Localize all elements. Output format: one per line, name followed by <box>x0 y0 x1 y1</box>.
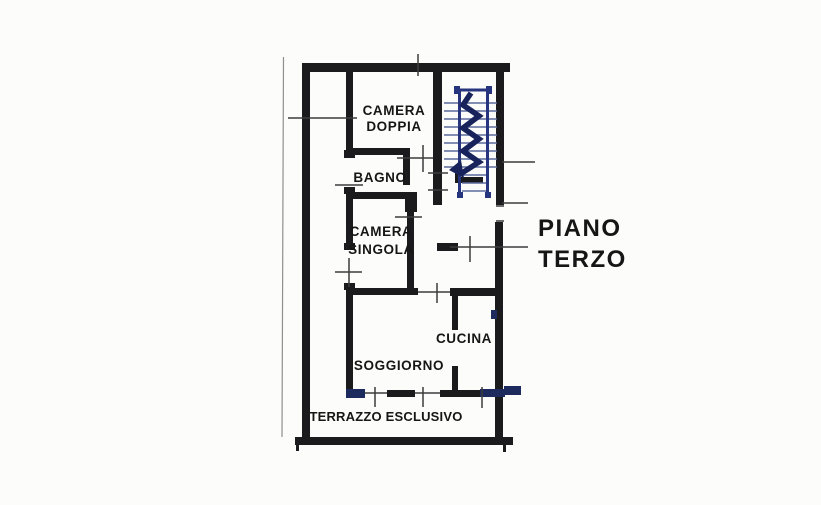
terrace-door-jamb-left <box>346 389 365 398</box>
wall-terrace-bottom <box>295 437 513 445</box>
wall-jamb <box>405 192 417 212</box>
floor-plan-page: CAMERA DOPPIA BAGNO CAMERA SINGOLA CUCIN… <box>0 0 821 505</box>
room-label-camera-singola-line1: CAMERA <box>350 224 413 239</box>
wall-outer-right-stairwell <box>496 63 504 205</box>
room-label-soggiorno: SOGGIORNO <box>354 358 444 373</box>
wall-outer-left <box>302 63 310 444</box>
wall-south-seg <box>387 390 415 397</box>
wall-interior-left-a <box>346 72 353 158</box>
terrace-door-stub <box>504 386 521 395</box>
wall-outer-top <box>302 63 510 72</box>
wall-outer-right-lower <box>495 222 503 437</box>
room-label-cucina: CUCINA <box>436 331 492 346</box>
wall-bagno-singola <box>348 192 405 199</box>
floor-title-line2: TERZO <box>538 246 627 273</box>
wall-cucina-left-a <box>452 295 458 330</box>
wall-doppia-bagno <box>352 148 410 155</box>
wall-hall-top-left <box>347 288 418 295</box>
wall-bottom-right-tick <box>503 437 506 452</box>
floor-plan-canvas: CAMERA DOPPIA BAGNO CAMERA SINGOLA CUCIN… <box>0 0 821 505</box>
room-label-terrazzo-esclusivo: TERRAZZO ESCLUSIVO <box>309 409 462 424</box>
room-label-camera-doppia-line2: DOPPIA <box>366 119 421 134</box>
room-label-camera-doppia-line1: CAMERA <box>363 103 426 118</box>
wall-bottom-left-tick <box>296 437 299 451</box>
room-label-camera-singola-line2: SINGOLA <box>348 242 414 257</box>
floor-title-line1: PIANO <box>538 215 622 242</box>
wall-stairwell-left <box>433 63 442 205</box>
wall-south-seg <box>440 390 480 397</box>
wall-interior-left-c <box>346 283 353 390</box>
wall-cucina-top <box>450 288 497 296</box>
terrace-door-jamb-right <box>480 389 505 397</box>
right-wall-jamb <box>491 310 497 319</box>
room-label-bagno: BAGNO <box>353 170 406 185</box>
